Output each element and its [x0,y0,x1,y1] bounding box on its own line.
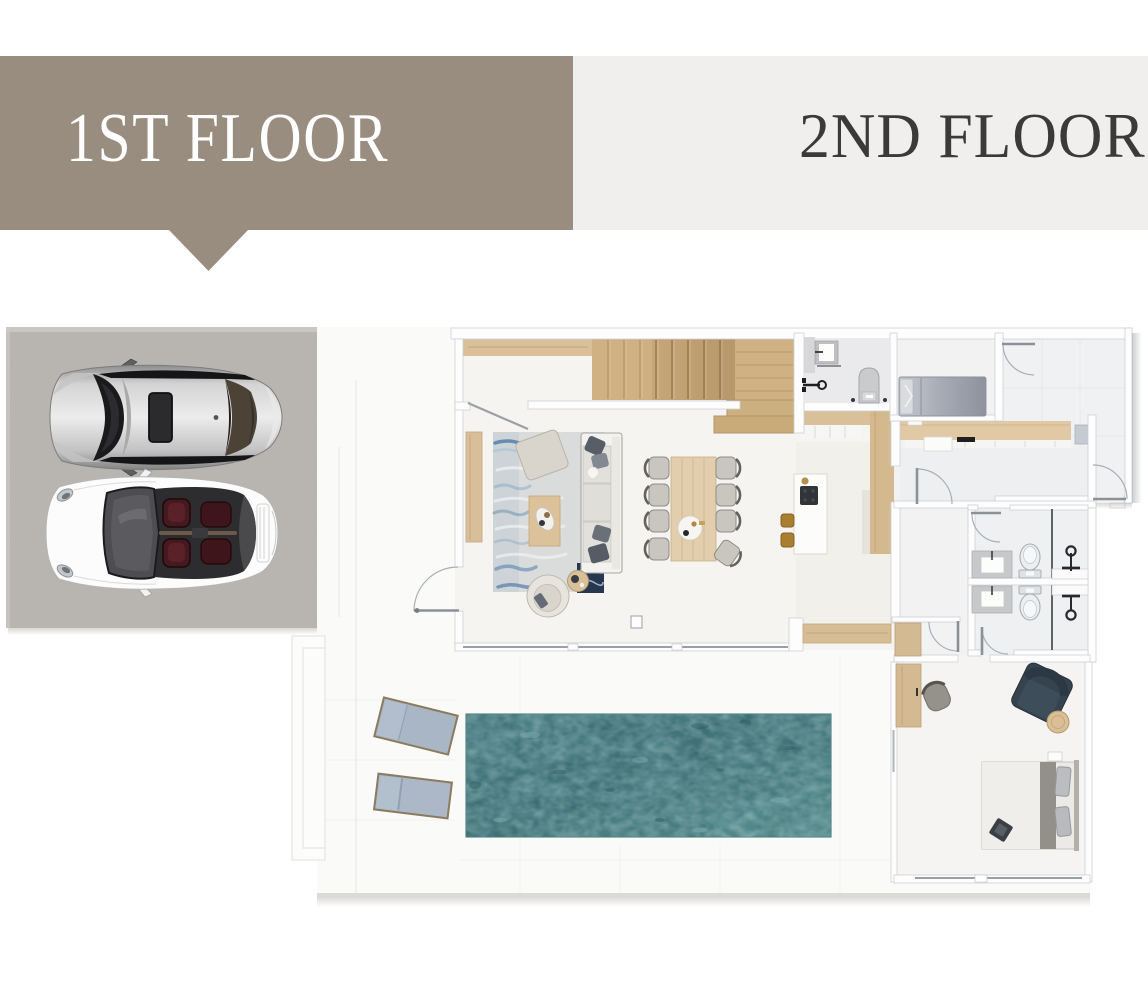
svg-text:1ST FLOOR: 1ST FLOOR [66,100,389,178]
svg-text:2ND FLOOR: 2ND FLOOR [799,101,1146,171]
